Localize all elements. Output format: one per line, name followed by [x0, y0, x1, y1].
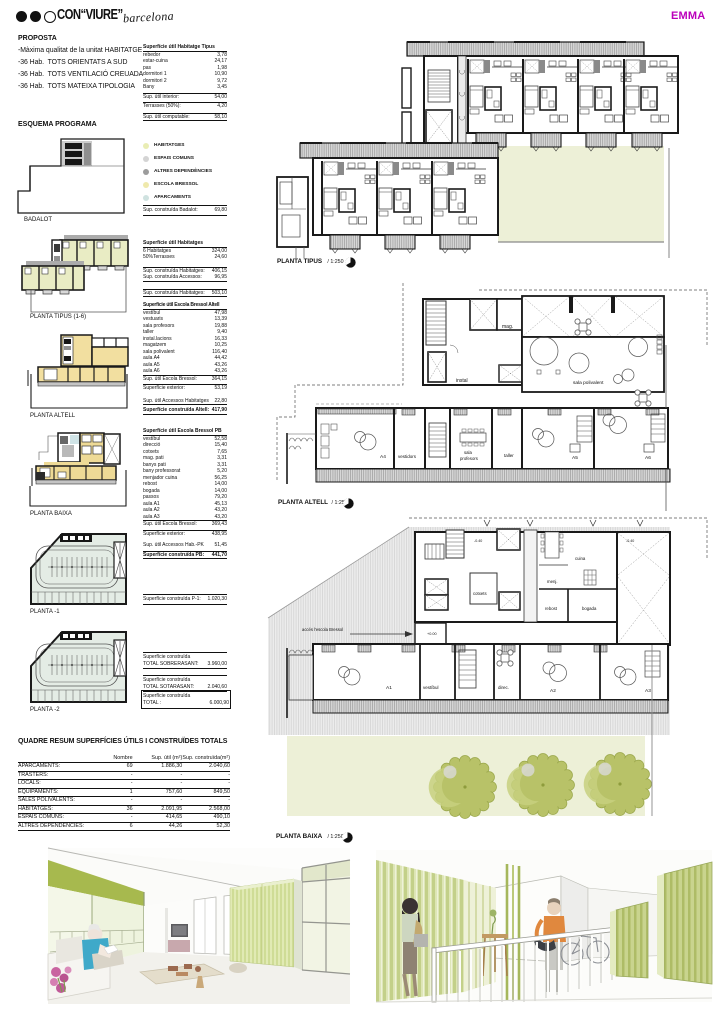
svg-text:taller: taller — [504, 453, 514, 458]
svg-text:direc.: direc. — [498, 685, 509, 690]
svg-text:vestíbul: vestíbul — [423, 685, 439, 690]
svg-text:cuina: cuina — [575, 556, 586, 561]
svg-text:A6: A6 — [645, 455, 651, 461]
svg-text:vestidors: vestidors — [398, 454, 417, 459]
svg-text:menj.: menj. — [547, 579, 558, 584]
svg-text:rebost: rebost — [545, 606, 558, 611]
svg-text:instal: instal — [456, 378, 468, 384]
svg-text:profesors: profesors — [460, 456, 478, 461]
svg-text:+0.00: +0.00 — [427, 632, 437, 636]
svg-text:-0.40: -0.40 — [626, 539, 634, 543]
svg-text:A2: A2 — [550, 688, 556, 694]
svg-text:mag.: mag. — [502, 324, 513, 330]
svg-text:sala polivalent: sala polivalent — [573, 380, 604, 386]
svg-text:A1: A1 — [386, 685, 392, 691]
svg-text:A4: A4 — [380, 454, 386, 460]
svg-text:A3: A3 — [645, 688, 651, 694]
svg-text:cotxets: cotxets — [473, 591, 487, 596]
svg-text:bogada: bogada — [582, 606, 597, 611]
svg-text:sala: sala — [464, 450, 472, 455]
svg-text:accés l'escola Bressol: accés l'escola Bressol — [302, 627, 343, 632]
svg-text:A5: A5 — [572, 455, 578, 461]
svg-text:-0.40: -0.40 — [474, 539, 482, 543]
